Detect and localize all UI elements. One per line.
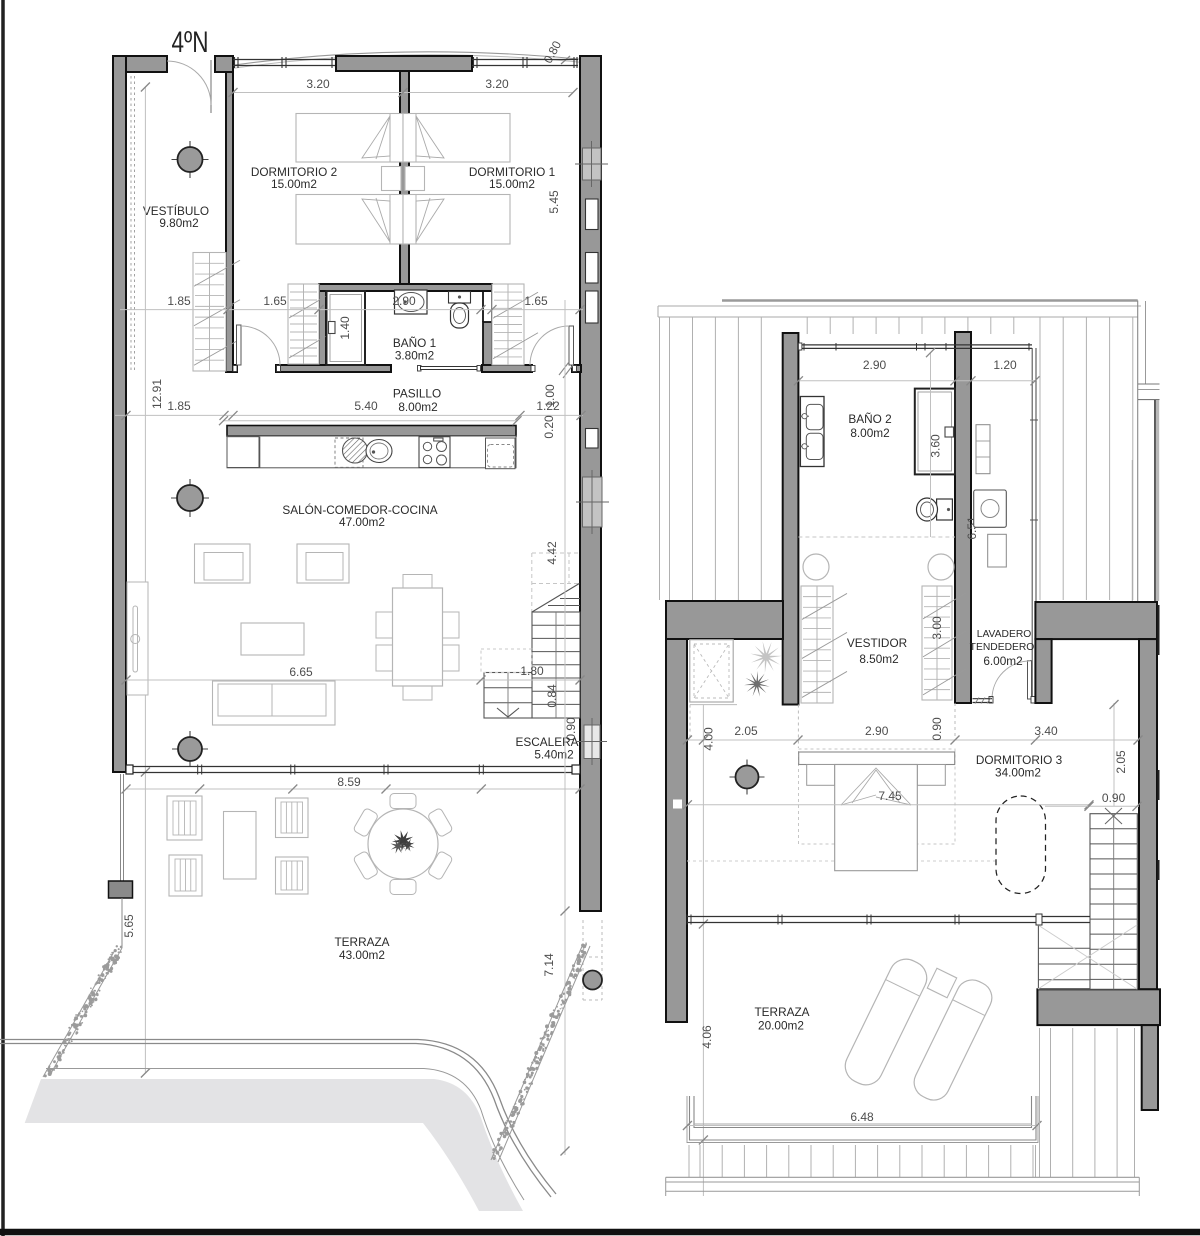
svg-text:0.90: 0.90 (1102, 791, 1126, 805)
svg-text:15.00m2: 15.00m2 (271, 177, 317, 191)
svg-text:3.60: 3.60 (929, 434, 943, 458)
svg-text:6.65: 6.65 (289, 665, 313, 679)
svg-text:2.05: 2.05 (734, 724, 758, 738)
svg-text:1.65: 1.65 (263, 294, 287, 308)
svg-text:15.00m2: 15.00m2 (489, 177, 535, 191)
svg-text:47.00m2: 47.00m2 (339, 515, 385, 529)
svg-text:7.14: 7.14 (542, 953, 556, 977)
svg-text:8.50m2: 8.50m2 (859, 652, 898, 666)
svg-text:34.00m2: 34.00m2 (995, 766, 1041, 780)
svg-text:20.00m2: 20.00m2 (758, 1019, 804, 1033)
svg-text:8.00m2: 8.00m2 (850, 426, 889, 440)
svg-text:VESTIDOR: VESTIDOR (847, 636, 907, 650)
svg-text:3.00: 3.00 (930, 616, 944, 640)
svg-text:1.85: 1.85 (167, 399, 191, 413)
svg-text:1.20: 1.20 (993, 358, 1017, 372)
svg-text:43.00m2: 43.00m2 (339, 948, 385, 962)
svg-text:5.40m2: 5.40m2 (534, 748, 573, 762)
svg-text:5.45: 5.45 (547, 190, 561, 214)
svg-text:LAVADERO: LAVADERO (977, 629, 1032, 640)
svg-text:2.90: 2.90 (863, 358, 887, 372)
svg-text:0.20: 0.20 (542, 415, 556, 439)
svg-text:7.45: 7.45 (878, 789, 902, 803)
svg-text:1.85: 1.85 (167, 294, 191, 308)
svg-text:0.84: 0.84 (545, 684, 559, 708)
svg-text:2.05: 2.05 (1114, 750, 1128, 774)
svg-text:2.90: 2.90 (392, 294, 416, 308)
svg-text:6.00m2: 6.00m2 (983, 654, 1022, 668)
svg-text:1.40: 1.40 (338, 316, 352, 340)
svg-text:2.90: 2.90 (865, 724, 889, 738)
svg-text:TENDEDERO: TENDEDERO (970, 642, 1035, 653)
svg-text:BAÑO 2: BAÑO 2 (848, 412, 891, 426)
svg-text:9.80m2: 9.80m2 (159, 216, 198, 230)
svg-text:3.40: 3.40 (1034, 724, 1058, 738)
svg-text:PASILLO: PASILLO (393, 387, 441, 401)
svg-text:5.65: 5.65 (122, 914, 136, 938)
svg-text:8.59: 8.59 (337, 775, 361, 789)
svg-text:3.20: 3.20 (306, 77, 330, 91)
svg-text:0.90: 0.90 (930, 717, 944, 741)
svg-text:8.00m2: 8.00m2 (398, 400, 437, 414)
svg-text:6.48: 6.48 (850, 1110, 874, 1124)
svg-text:4ºN: 4ºN (172, 26, 209, 59)
svg-text:TERRAZA: TERRAZA (754, 1005, 809, 1019)
svg-text:3.20: 3.20 (485, 77, 509, 91)
svg-text:4.42: 4.42 (545, 541, 559, 565)
svg-text:1.00: 1.00 (543, 384, 557, 408)
svg-text:3.80m2: 3.80m2 (395, 349, 434, 363)
svg-text:5.40: 5.40 (354, 399, 378, 413)
svg-text:4.06: 4.06 (700, 1025, 714, 1049)
svg-text:TERRAZA: TERRAZA (334, 935, 389, 949)
svg-text:1.65: 1.65 (524, 294, 548, 308)
svg-text:12.91: 12.91 (150, 379, 164, 409)
svg-text:1.80: 1.80 (520, 664, 544, 678)
